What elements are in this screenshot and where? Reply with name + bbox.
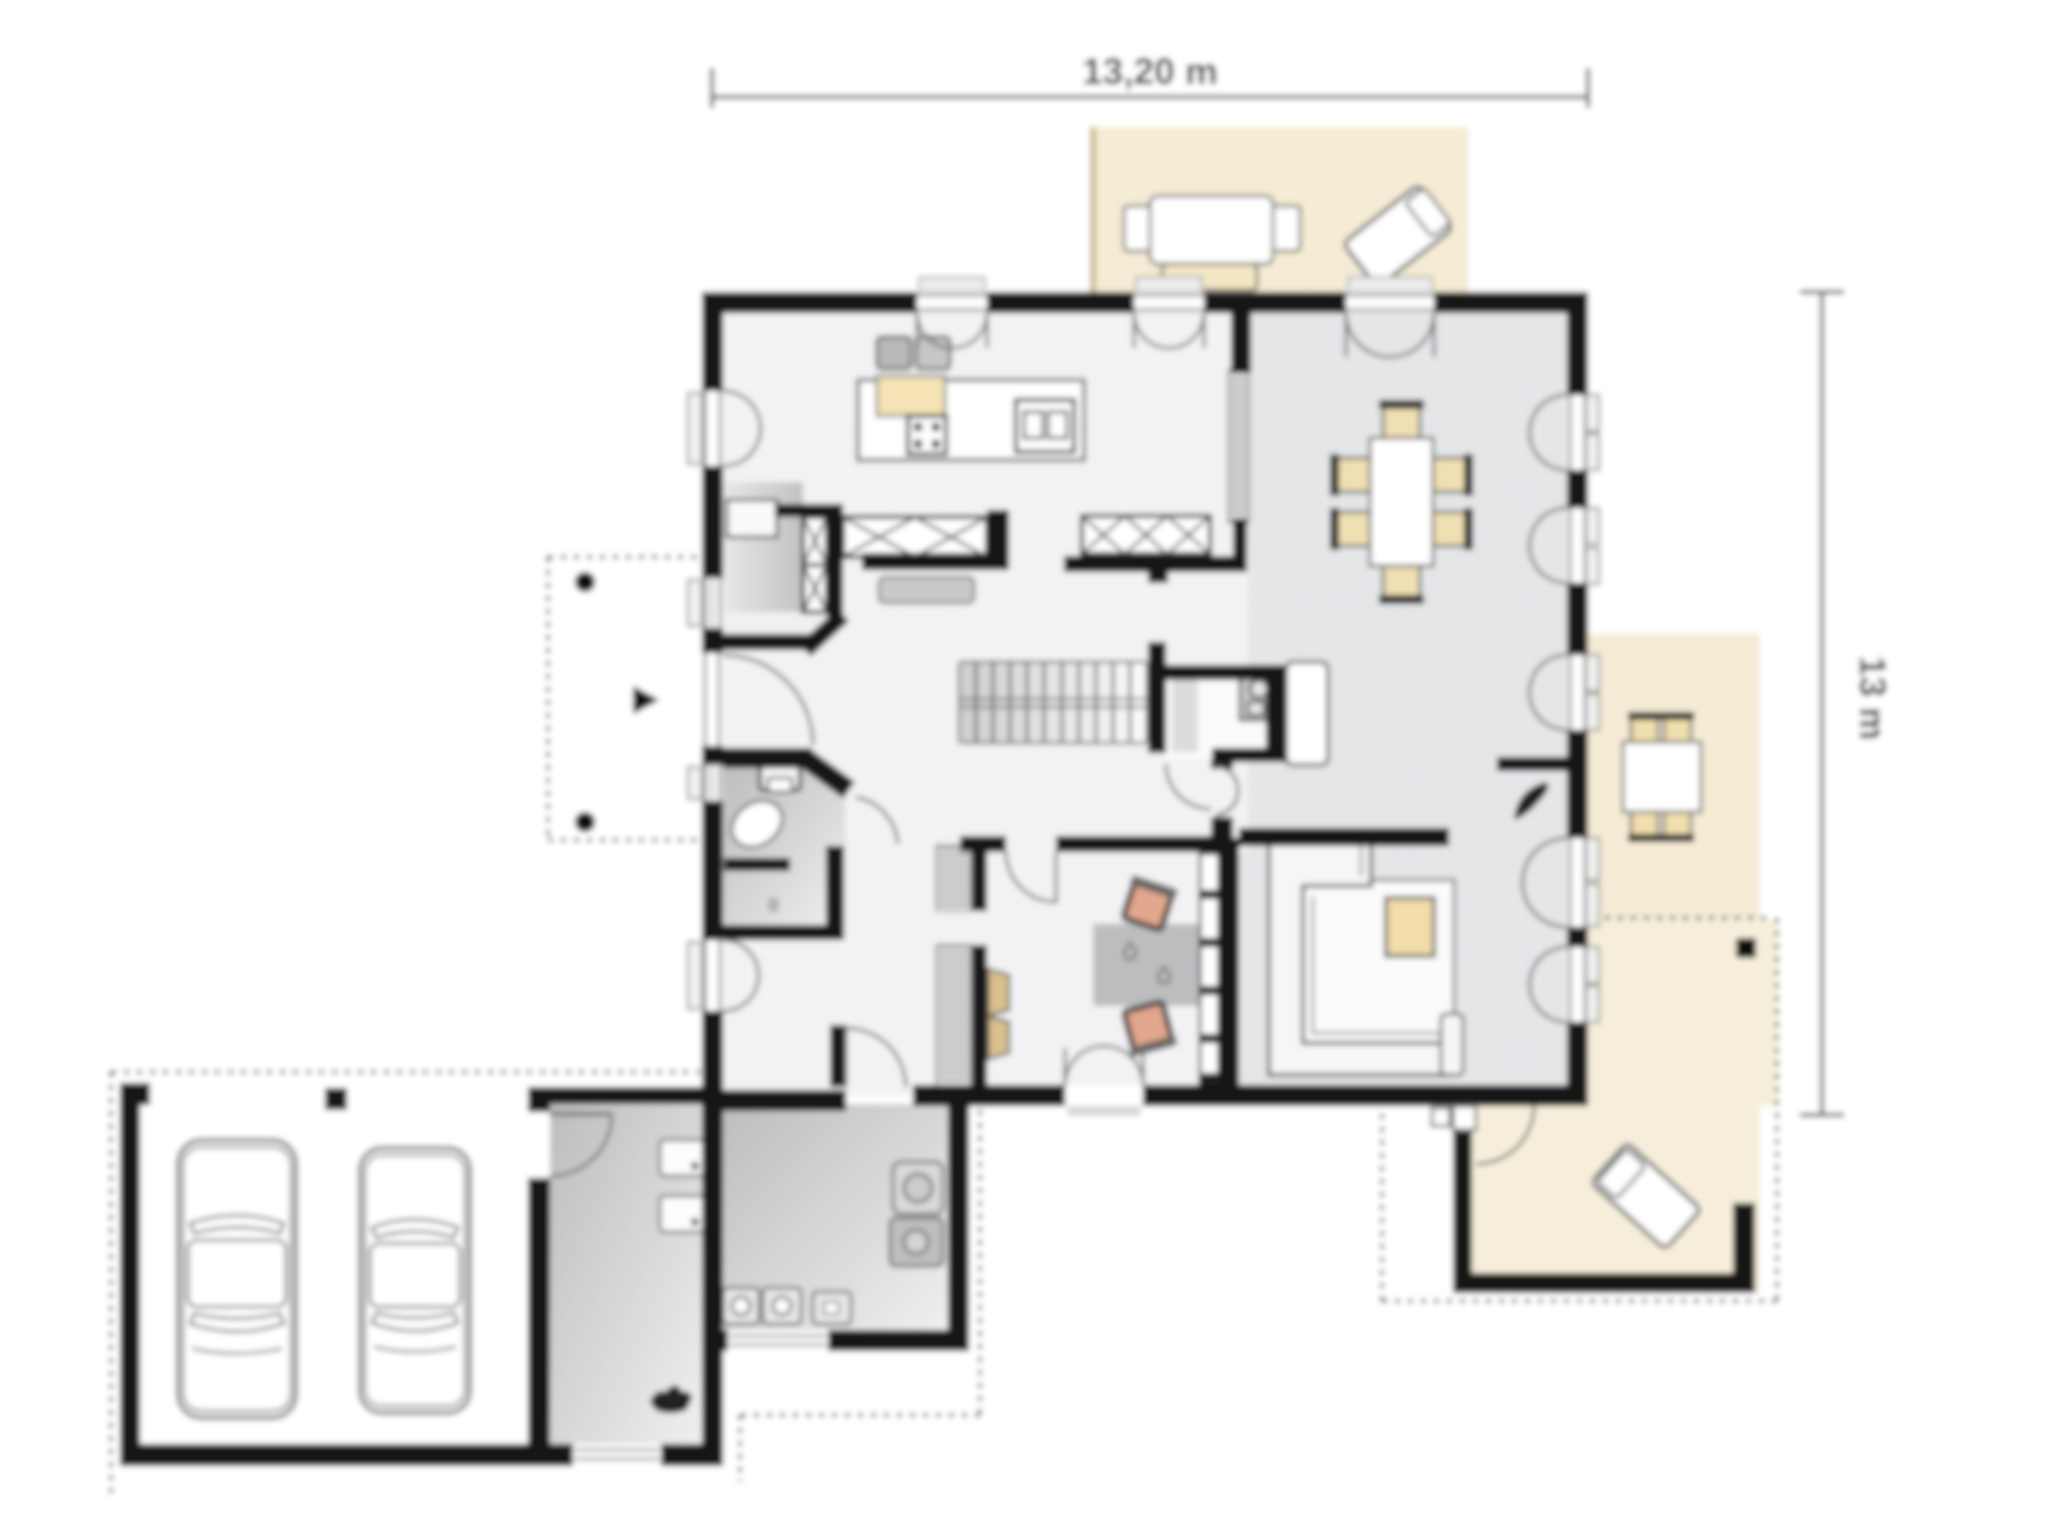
svg-text:13 m: 13 m [1852, 656, 1893, 740]
svg-text:13,20 m: 13,20 m [1082, 51, 1218, 92]
svg-text:II: II [768, 895, 779, 917]
